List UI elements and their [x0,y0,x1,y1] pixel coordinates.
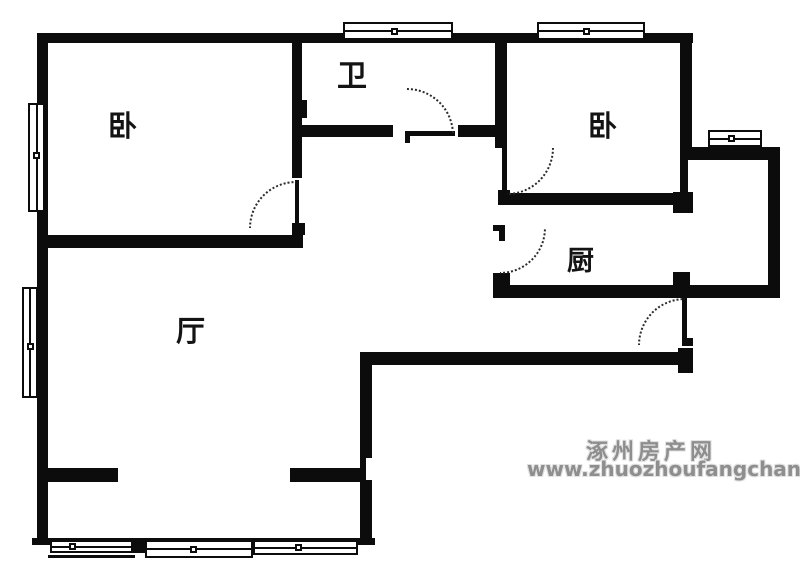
window-handle-icon [391,28,398,35]
door-swing-arc-circle [500,228,546,274]
window [537,22,645,40]
window [22,287,38,398]
wall [673,272,690,285]
window-handle-icon [33,152,40,159]
wall [495,43,507,148]
window-handle-icon [295,544,302,551]
wall [768,147,780,298]
wall [48,555,135,558]
door-swing-arc-circle [407,88,454,135]
room-label-bathroom: 卫 [337,62,367,92]
room-label-bedroom-left: 卧 [108,112,137,141]
wall [360,352,693,365]
wall [458,125,497,137]
window-pane-line [52,546,131,548]
door-swing-arc [507,148,554,195]
wall [302,125,393,137]
window-handle-icon [583,28,590,35]
floor-plan: 卧卫卧厨厅涿州房产网www.zhuozhoufangchan.com [0,0,800,576]
window [253,540,358,555]
window-handle-icon [27,343,34,350]
room-label-living-room: 厅 [176,317,205,346]
door-swing-arc-circle [249,181,296,228]
wall [37,235,303,248]
wall [493,285,780,298]
door-swing-arc [249,181,296,228]
window [708,130,762,147]
wall [680,33,692,155]
room-label-kitchen: 厨 [567,248,594,275]
window-handle-icon [69,543,76,550]
wall [133,538,145,553]
wall [48,468,118,482]
window-pane-line [147,548,251,550]
window-handle-icon [728,135,735,142]
door-swing-arc [500,228,546,274]
door-swing-arc-circle [638,298,685,345]
window-pane-line [539,30,643,32]
wall [678,348,693,373]
wall [688,147,780,160]
door-swing-arc [638,298,685,345]
wall [360,352,372,545]
window [145,540,253,558]
door-swing-arc-circle [507,148,554,195]
window [50,540,133,553]
wall [300,100,307,118]
window [28,103,45,212]
wall [290,468,360,482]
wall [493,273,510,298]
window-pane-line [345,30,451,32]
room-label-bedroom-right: 卧 [588,112,617,141]
door-swing-arc [407,88,454,135]
window-pane-line [255,547,356,549]
watermark-site-url: www.zhuozhoufangchan.com [527,457,800,481]
window-handle-icon [190,546,197,553]
window [343,22,453,40]
wall-opening [366,458,372,480]
window-pane-line [710,138,760,140]
